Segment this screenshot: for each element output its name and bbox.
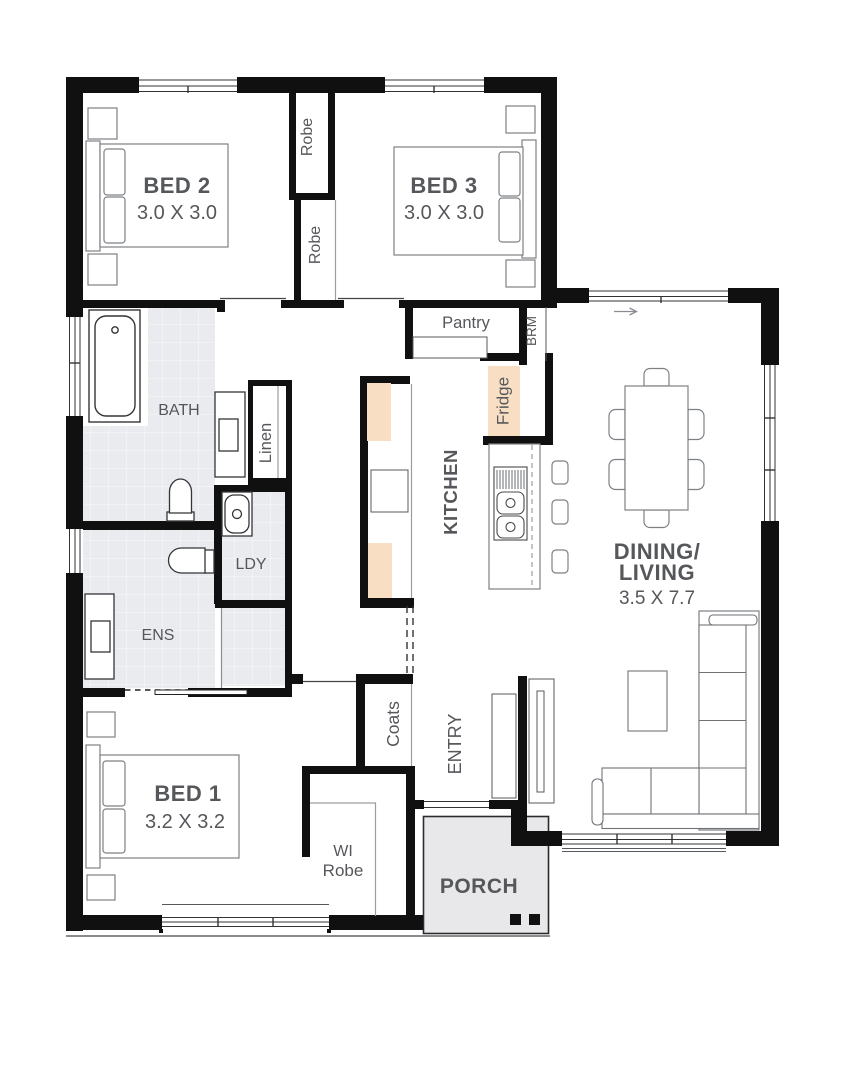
svg-text:BATH: BATH <box>158 402 199 419</box>
svg-text:Robe: Robe <box>299 118 316 156</box>
svg-text:3.2 X 3.2: 3.2 X 3.2 <box>145 811 225 833</box>
svg-text:Coats: Coats <box>383 701 403 747</box>
svg-text:3.0 X 3.0: 3.0 X 3.0 <box>404 202 484 224</box>
svg-text:LIVING: LIVING <box>619 560 695 585</box>
svg-text:LDY: LDY <box>235 556 266 573</box>
svg-text:Pantry: Pantry <box>442 314 490 332</box>
svg-text:KITCHEN: KITCHEN <box>440 449 461 535</box>
svg-text:WI: WI <box>333 843 353 860</box>
svg-text:3.5 X 7.7: 3.5 X 7.7 <box>619 588 695 609</box>
svg-text:ENS: ENS <box>142 627 175 644</box>
svg-text:BED 1: BED 1 <box>154 781 221 806</box>
svg-text:BED 3: BED 3 <box>410 173 477 198</box>
svg-text:Fridge: Fridge <box>494 377 513 425</box>
svg-text:BED 2: BED 2 <box>143 173 210 198</box>
svg-text:ENTRY: ENTRY <box>445 714 465 775</box>
svg-text:Linen: Linen <box>257 423 275 463</box>
svg-text:BRM: BRM <box>524 316 539 346</box>
svg-text:Robe: Robe <box>307 226 324 264</box>
svg-text:Robe: Robe <box>323 861 364 880</box>
svg-text:PORCH: PORCH <box>440 875 518 898</box>
svg-text:3.0 X 3.0: 3.0 X 3.0 <box>137 202 217 224</box>
